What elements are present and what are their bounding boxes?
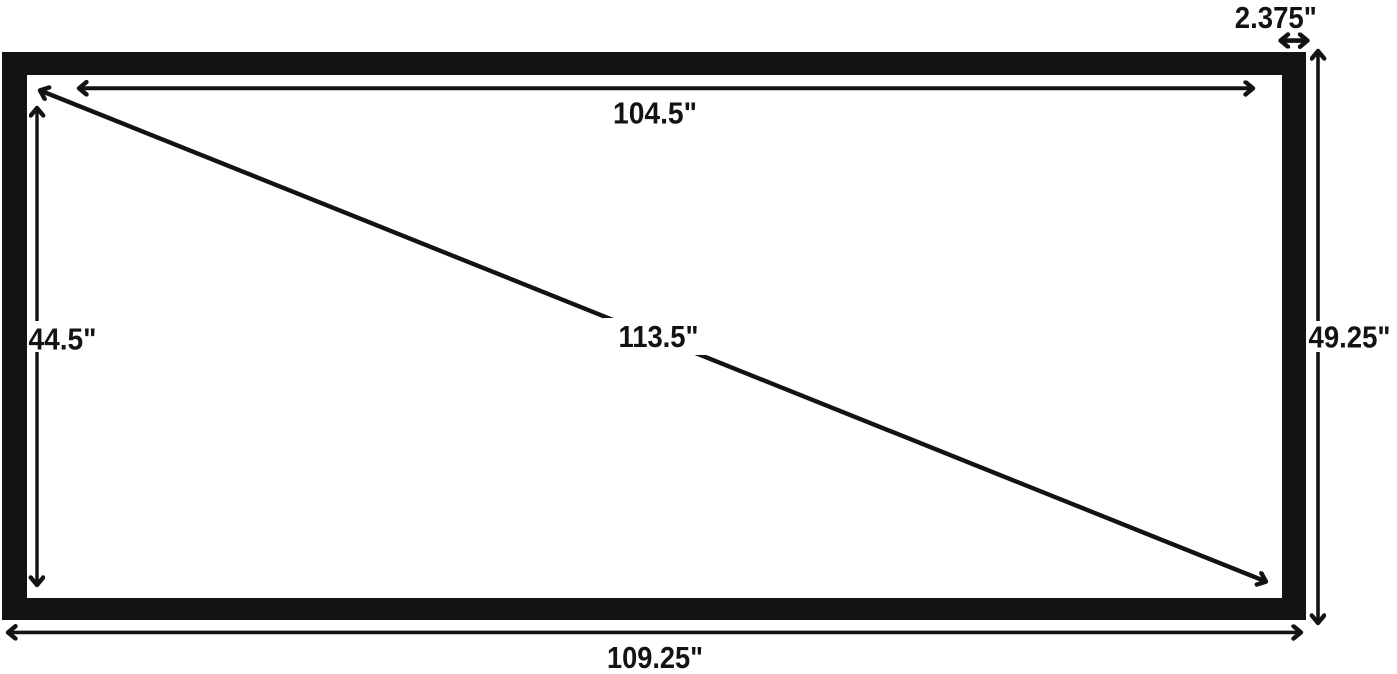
- svg-text:2.375": 2.375": [1235, 1, 1317, 35]
- svg-text:109.25": 109.25": [607, 641, 703, 674]
- svg-text:113.5": 113.5": [619, 320, 699, 354]
- svg-text:49.25": 49.25": [1309, 321, 1391, 355]
- svg-text:104.5": 104.5": [613, 97, 697, 131]
- svg-text:44.5": 44.5": [29, 323, 97, 357]
